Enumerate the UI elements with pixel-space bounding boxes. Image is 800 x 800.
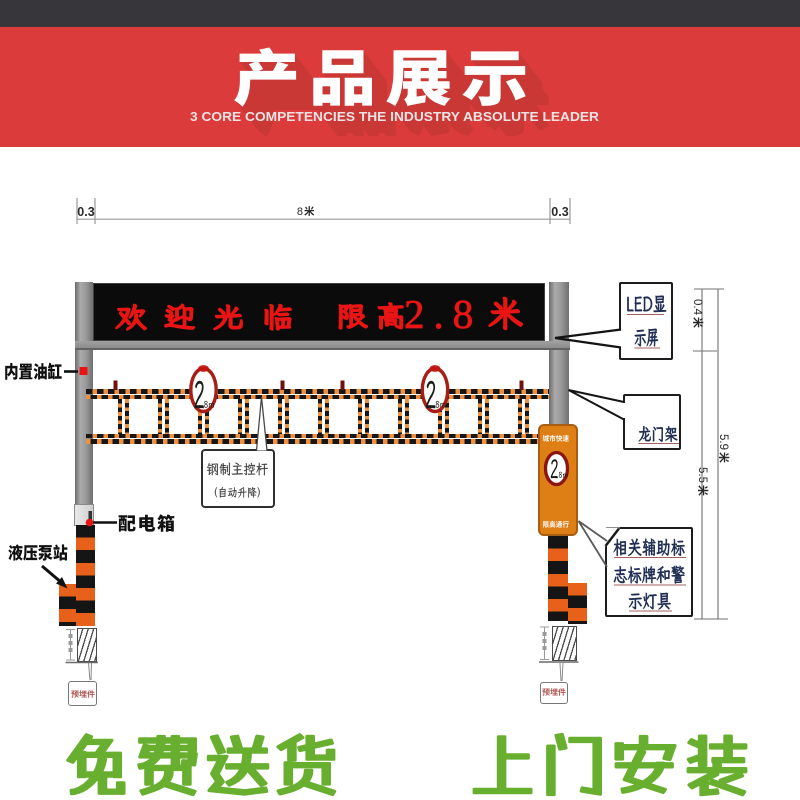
svg-text:0.3: 0.3 <box>77 205 94 219</box>
svg-text:5.9: 5.9 <box>717 434 729 450</box>
svg-text:3 CORE COMPETENCIES THE INDUS: 3 CORE COMPETENCIES THE INDUSTRY ABSOLUT… <box>190 109 599 124</box>
svg-text:0.3: 0.3 <box>551 205 568 219</box>
svg-text:8: 8 <box>297 206 303 218</box>
svg-text:5.5: 5.5 <box>696 467 708 483</box>
svg-text:0.4: 0.4 <box>691 299 703 316</box>
